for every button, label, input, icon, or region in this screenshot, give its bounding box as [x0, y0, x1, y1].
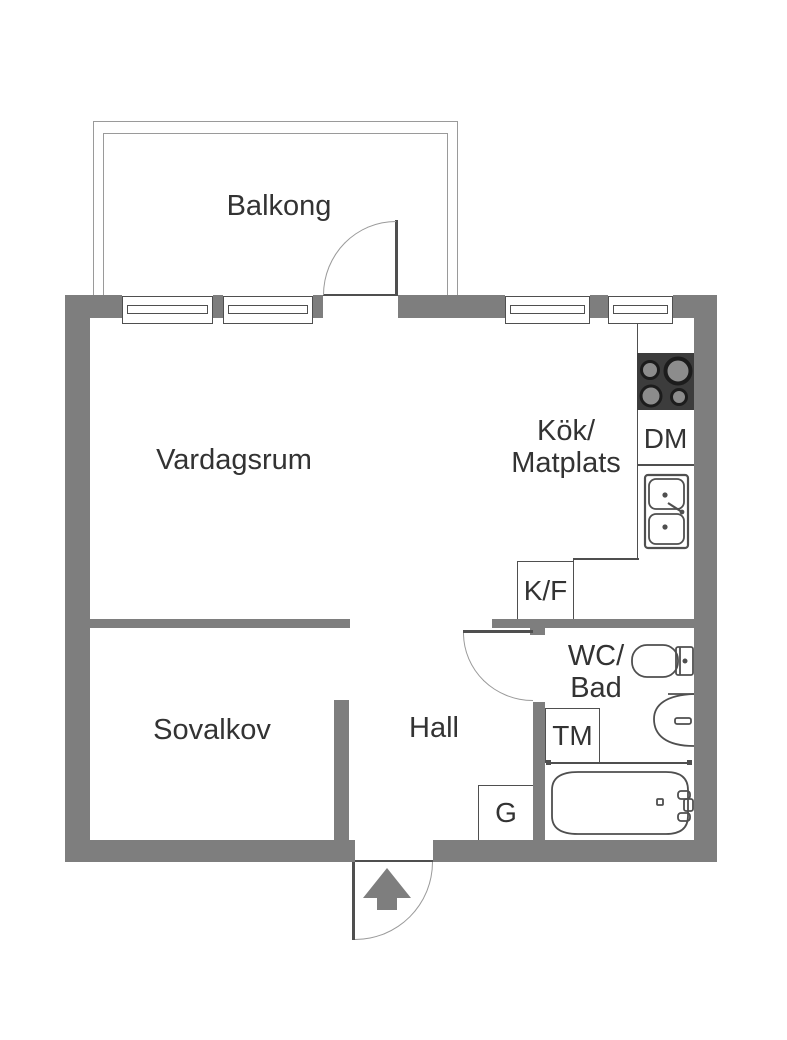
washing-machine-label: TM	[552, 720, 592, 752]
hall-label: Hall	[384, 712, 484, 744]
kitchen-label-line1: Kök/	[491, 415, 641, 447]
bathroom-door-swing-icon	[463, 633, 533, 701]
wall-alcove-top	[90, 619, 350, 628]
bathtub-icon	[548, 769, 695, 837]
window-icon	[505, 296, 590, 324]
stove-icon	[637, 353, 694, 410]
window-icon	[608, 296, 673, 324]
wall-left	[65, 295, 90, 862]
shower-rail-end-right	[687, 760, 692, 765]
floor-plan: K/F TM G	[0, 0, 787, 1040]
bathroom-label-line2: Bad	[546, 672, 646, 704]
fridge-freezer-box: K/F	[517, 561, 574, 620]
dishwasher-label: DM	[637, 423, 694, 455]
wall-top-a	[65, 295, 122, 318]
shower-rail-icon	[548, 762, 691, 764]
wall-bathroom-top	[492, 619, 694, 628]
wardrobe-box: G	[478, 785, 534, 841]
kitchen-label: Kök/ Matplats	[491, 415, 641, 479]
wardrobe-label: G	[495, 797, 517, 829]
lower-counter	[573, 558, 694, 620]
kitchen-label-line2: Matplats	[491, 447, 641, 479]
counter-divider	[638, 464, 694, 466]
sink-icon	[643, 473, 690, 550]
wall-top-pier1	[213, 295, 223, 318]
wall-top-b	[398, 295, 505, 318]
wall-top-c	[673, 295, 717, 318]
shower-rail-end-left	[546, 760, 551, 765]
bathroom-label-line1: WC/	[546, 640, 646, 672]
wall-top-pier3	[590, 295, 608, 318]
wall-bottom-left	[65, 840, 355, 862]
balcony-label: Balkong	[179, 190, 379, 222]
counter-step-line	[573, 558, 639, 560]
washing-machine-box: TM	[545, 708, 600, 763]
wall-alcove-side	[334, 700, 349, 841]
wall-bathroom-side	[533, 702, 545, 841]
washbasin-icon	[650, 691, 694, 749]
stove	[637, 353, 694, 410]
wall-top-pier2	[313, 295, 323, 318]
wall-bottom-right	[433, 840, 717, 862]
sleeping-alcove-label: Sovalkov	[112, 714, 312, 746]
bathroom-label: WC/ Bad	[546, 640, 646, 704]
entry-arrow-icon	[359, 866, 415, 912]
window-icon	[223, 296, 313, 324]
fridge-freezer-label: K/F	[524, 575, 568, 607]
window-icon	[122, 296, 213, 324]
wall-right	[694, 295, 717, 862]
living-room-label: Vardagsrum	[134, 444, 334, 476]
